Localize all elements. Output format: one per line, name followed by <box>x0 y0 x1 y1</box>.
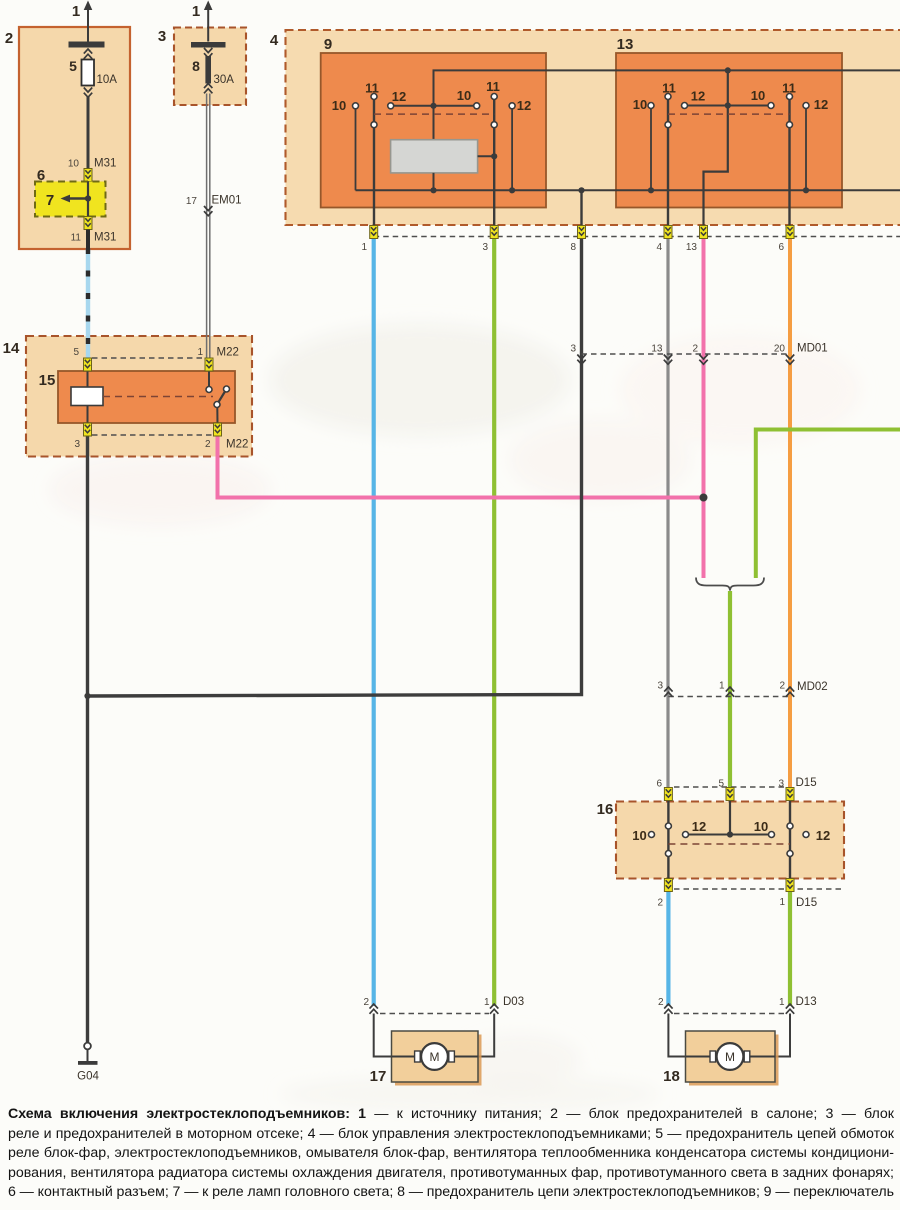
svg-text:3: 3 <box>570 344 576 355</box>
svg-text:M31: M31 <box>94 158 116 170</box>
svg-text:M31: M31 <box>94 232 116 244</box>
svg-text:15: 15 <box>39 372 56 389</box>
svg-text:30A: 30A <box>214 74 235 86</box>
svg-text:13: 13 <box>686 242 698 253</box>
svg-text:5: 5 <box>718 779 724 790</box>
svg-text:12: 12 <box>814 97 828 112</box>
svg-text:D03: D03 <box>503 996 524 1008</box>
svg-text:10: 10 <box>633 97 647 112</box>
svg-text:D15: D15 <box>796 777 817 789</box>
svg-text:1: 1 <box>484 997 490 1008</box>
svg-text:10: 10 <box>332 98 346 113</box>
svg-text:9: 9 <box>324 36 332 53</box>
svg-text:M22: M22 <box>217 347 239 359</box>
svg-text:16: 16 <box>597 801 614 818</box>
svg-text:12: 12 <box>517 98 531 113</box>
svg-text:M: M <box>725 1050 735 1064</box>
svg-text:1: 1 <box>779 997 785 1008</box>
svg-text:2: 2 <box>657 898 663 909</box>
svg-text:3: 3 <box>657 681 663 692</box>
svg-text:M: M <box>430 1050 440 1064</box>
svg-text:12: 12 <box>392 89 406 104</box>
svg-text:MD01: MD01 <box>797 343 828 355</box>
svg-text:G04: G04 <box>77 1071 99 1083</box>
svg-text:3: 3 <box>158 28 166 45</box>
svg-text:11: 11 <box>365 81 379 96</box>
svg-text:1: 1 <box>719 681 725 692</box>
svg-text:D15: D15 <box>796 897 817 909</box>
svg-text:6: 6 <box>37 167 45 184</box>
svg-text:2: 2 <box>692 344 698 355</box>
svg-text:3: 3 <box>74 439 80 450</box>
svg-text:2: 2 <box>363 997 369 1008</box>
svg-text:8: 8 <box>192 58 200 74</box>
svg-text:M22: M22 <box>226 439 248 451</box>
svg-text:EM01: EM01 <box>212 195 242 207</box>
svg-text:1: 1 <box>361 242 367 253</box>
svg-text:11: 11 <box>486 79 500 94</box>
svg-text:MD02: MD02 <box>797 681 828 693</box>
svg-text:12: 12 <box>816 828 830 843</box>
svg-text:2: 2 <box>779 681 785 692</box>
svg-text:D13: D13 <box>796 996 817 1008</box>
svg-text:13: 13 <box>617 36 634 53</box>
svg-text:10: 10 <box>754 819 768 834</box>
svg-text:6: 6 <box>778 242 784 253</box>
svg-text:5: 5 <box>69 58 77 74</box>
svg-text:1: 1 <box>779 897 785 908</box>
svg-text:10: 10 <box>751 88 765 103</box>
svg-text:7: 7 <box>46 192 54 209</box>
svg-text:13: 13 <box>651 344 663 355</box>
svg-text:10: 10 <box>457 88 471 103</box>
svg-text:2: 2 <box>5 30 13 47</box>
svg-text:1: 1 <box>197 347 203 358</box>
svg-text:2: 2 <box>658 997 664 1008</box>
svg-text:10: 10 <box>68 159 80 170</box>
svg-text:11: 11 <box>71 233 82 244</box>
svg-text:12: 12 <box>691 89 705 104</box>
svg-text:14: 14 <box>3 340 20 357</box>
svg-text:17: 17 <box>370 1068 387 1085</box>
svg-text:17: 17 <box>186 196 198 207</box>
svg-text:1: 1 <box>72 3 80 20</box>
svg-text:20: 20 <box>774 344 786 355</box>
svg-text:8: 8 <box>570 242 576 253</box>
svg-text:3: 3 <box>482 242 488 253</box>
svg-text:5: 5 <box>73 347 79 358</box>
svg-text:6: 6 <box>656 779 662 790</box>
svg-text:4: 4 <box>656 242 662 253</box>
svg-text:12: 12 <box>692 819 706 834</box>
svg-text:3: 3 <box>778 779 784 790</box>
svg-text:10: 10 <box>632 828 646 843</box>
svg-text:18: 18 <box>663 1068 680 1085</box>
svg-text:2: 2 <box>205 439 211 450</box>
svg-text:1: 1 <box>192 3 200 20</box>
svg-text:10A: 10A <box>97 74 118 86</box>
svg-text:4: 4 <box>270 32 279 49</box>
